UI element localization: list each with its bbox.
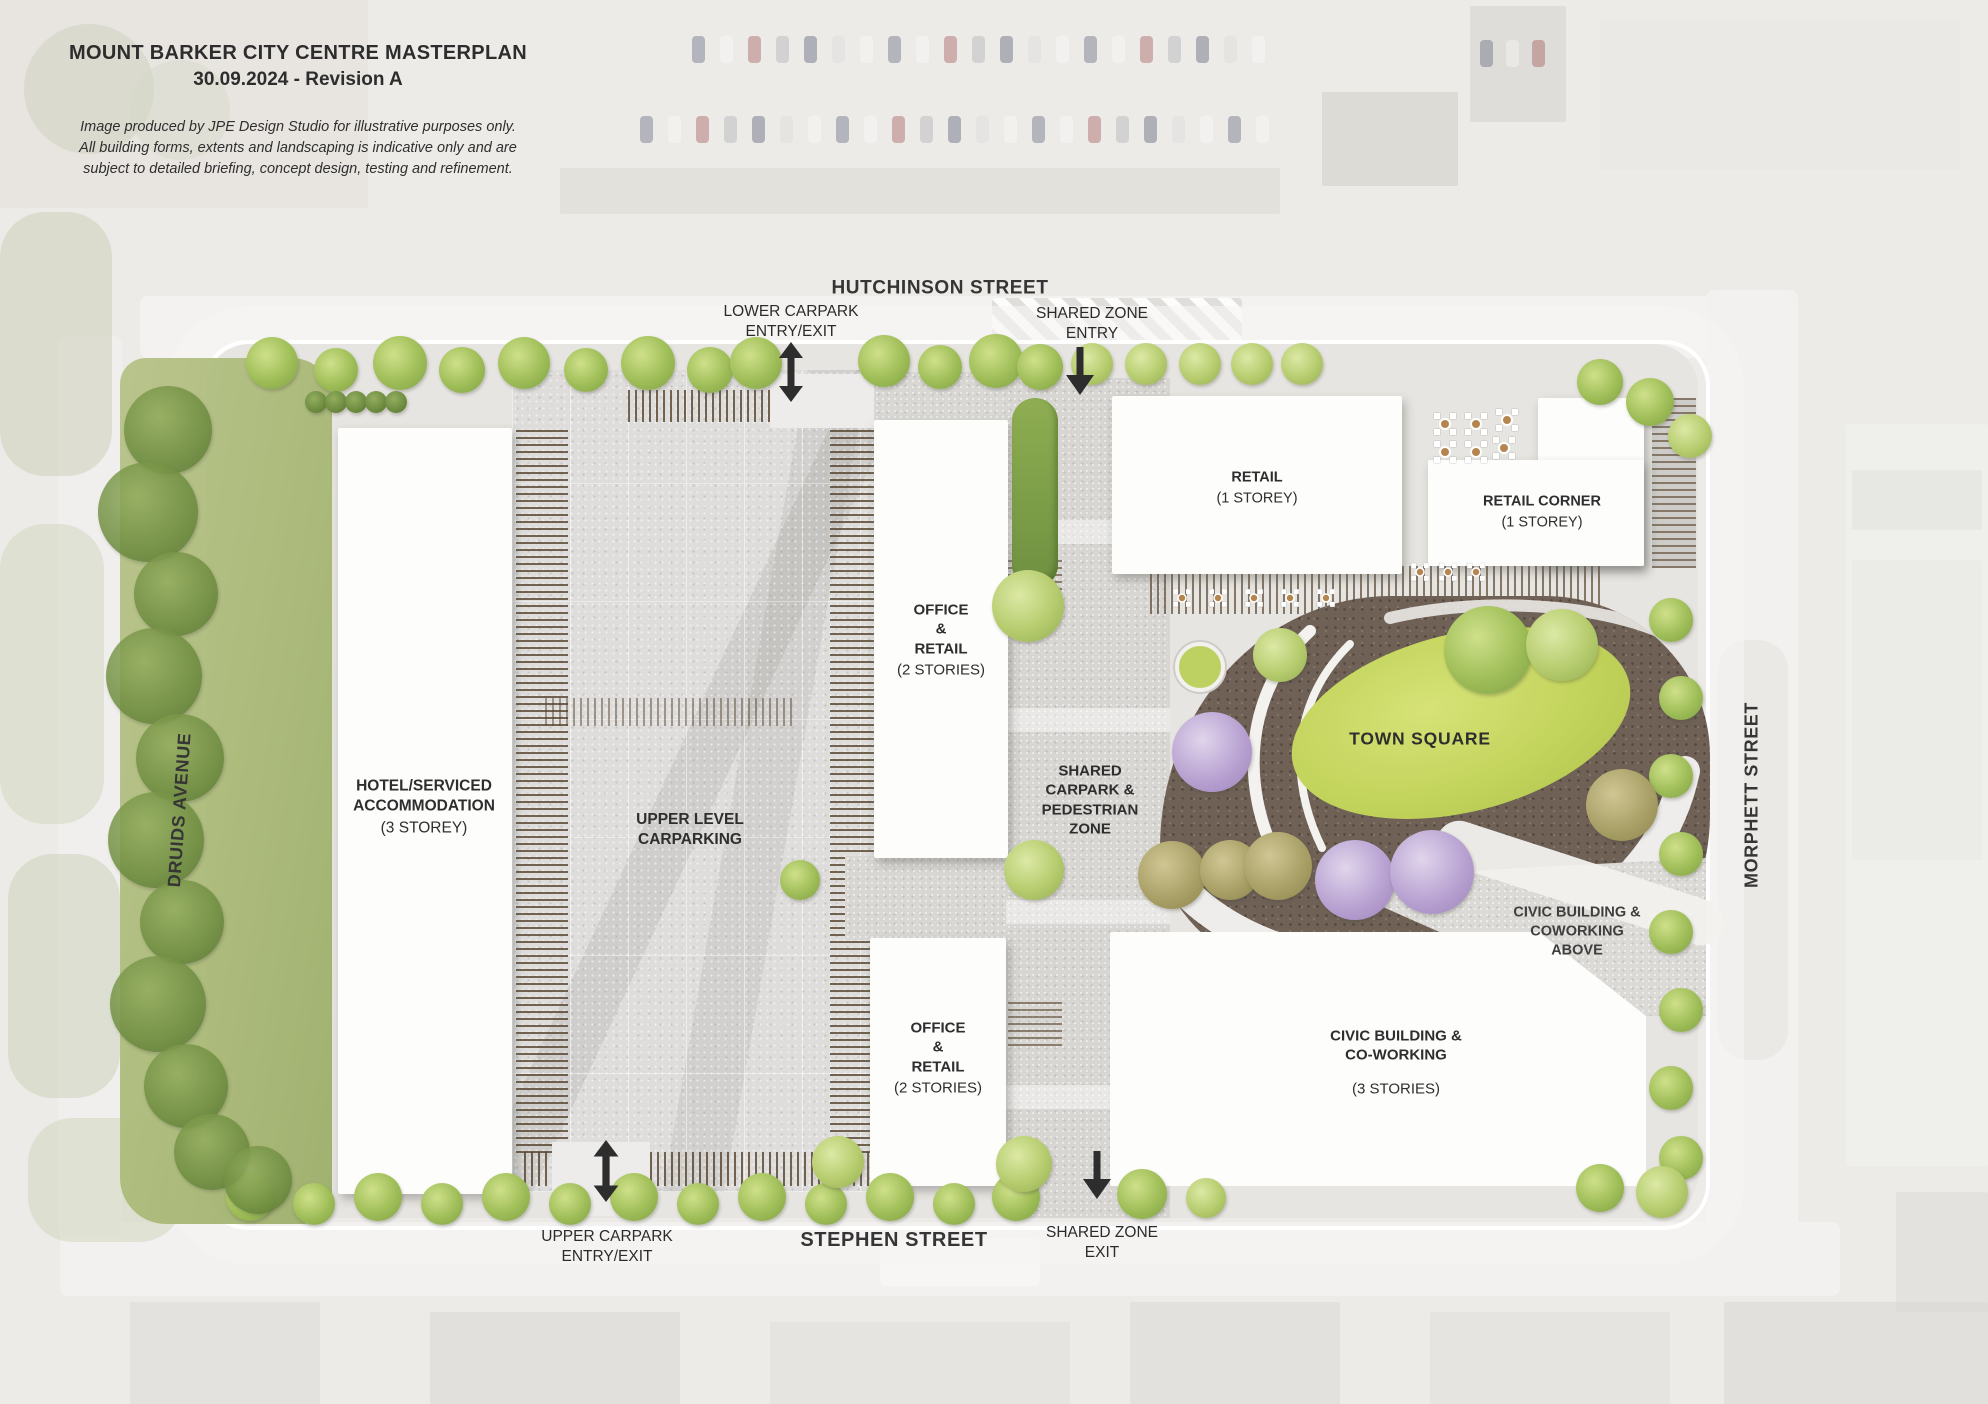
tree-icon (106, 628, 202, 724)
tree-icon (1444, 606, 1532, 694)
tree-icon (969, 334, 1023, 388)
plan-title: MOUNT BARKER CITY CENTRE MASTERPLAN (28, 42, 568, 65)
tree-icon (482, 1173, 530, 1221)
tree-icon (1315, 840, 1395, 920)
office-south-storeys: (2 STORIES) (894, 1079, 982, 1099)
tree-icon (1172, 712, 1252, 792)
tree-icon (738, 1173, 786, 1221)
shared-zone-exit-arrow-icon (1082, 1150, 1112, 1200)
tree-icon (373, 336, 427, 390)
tree-icon (858, 335, 910, 387)
tree-icon (1577, 359, 1623, 405)
tree-icon (421, 1183, 463, 1225)
tree-icon (1017, 344, 1063, 390)
civic-name: CIVIC BUILDING & CO-WORKING (1330, 1027, 1462, 1064)
tree-icon (314, 348, 358, 392)
tree-icon (134, 552, 218, 636)
lower-carpark-entry-label: LOWER CARPARK ENTRY/EXIT (724, 302, 859, 342)
tree-icon (305, 391, 327, 413)
shared-zone-name: SHARED CARPARK & PEDESTRIAN ZONE (1042, 762, 1139, 838)
retail-label: RETAIL (1 STOREY) (1216, 449, 1297, 526)
tree-icon (564, 348, 608, 392)
tree-icon (1649, 598, 1693, 642)
tree-icon (1138, 841, 1206, 909)
tree-icon (1175, 642, 1225, 692)
upper-carpark-label: UPPER LEVEL CARPARKING (636, 790, 744, 850)
tree-icon (1626, 378, 1674, 426)
tree-icon (805, 1183, 847, 1225)
town-square-name: TOWN SQUARE (1349, 728, 1491, 748)
tree-icon (110, 956, 206, 1052)
retail-name: RETAIL (1231, 469, 1282, 485)
tree-icon (992, 570, 1064, 642)
tree-icon (1125, 343, 1167, 385)
tree-icon (687, 347, 733, 393)
upper-carpark-entry-label: UPPER CARPARK ENTRY/EXIT (541, 1227, 673, 1267)
town-square-label: TOWN SQUARE (1349, 704, 1491, 750)
shared-zone-exit-label: SHARED ZONE EXIT (1046, 1223, 1158, 1263)
tree-icon (1636, 1166, 1688, 1218)
tree-icon (918, 345, 962, 389)
shared-zone-label: SHARED CARPARK & PEDESTRIAN ZONE (1042, 741, 1139, 839)
tree-icon (1186, 1178, 1226, 1218)
tree-icon (365, 391, 387, 413)
civic-storeys: (3 STORIES) (1330, 1079, 1462, 1099)
plan-disclaimer: Image produced by JPE Design Studio for … (28, 117, 568, 180)
hotel-storeys: (3 STOREY) (353, 819, 495, 839)
tree-icon (1281, 343, 1323, 385)
tree-icon (1253, 628, 1307, 682)
tree-icon (677, 1183, 719, 1225)
retail-corner-storeys: (1 STOREY) (1483, 513, 1601, 532)
civic-above-name: CIVIC BUILDING & COWORKING ABOVE (1513, 904, 1640, 958)
tree-icon (124, 386, 212, 474)
tree-icon (224, 1146, 292, 1214)
tree-icon (621, 336, 675, 390)
tree-icon (1659, 676, 1703, 720)
tree-icon (1004, 840, 1064, 900)
office-south-label: OFFICE & RETAIL (2 STORIES) (894, 999, 982, 1118)
tree-icon (1586, 769, 1658, 841)
tree-icon (1179, 343, 1221, 385)
office-south-name: OFFICE & RETAIL (910, 1019, 965, 1075)
shared-zone-entry-arrow-icon (1065, 346, 1095, 396)
tree-icon (1244, 832, 1312, 900)
tree-icon (996, 1136, 1052, 1192)
tree-icon (1117, 1169, 1167, 1219)
tree-icon (1649, 910, 1693, 954)
tree-icon (1668, 414, 1712, 458)
street-label-morphett: MORPHETT STREET (1740, 702, 1763, 888)
lower-carpark-arrow-icon (774, 342, 808, 402)
tree-icon (345, 391, 367, 413)
tree-icon (354, 1173, 402, 1221)
masterplan-canvas: MOUNT BARKER CITY CENTRE MASTERPLAN 30.0… (0, 0, 1988, 1404)
tree-icon (325, 391, 347, 413)
tree-icon (866, 1173, 914, 1221)
tree-icon (1576, 1164, 1624, 1212)
tree-layer (0, 0, 1988, 1404)
tree-icon (498, 337, 550, 389)
tree-icon (1390, 830, 1474, 914)
tree-icon (293, 1183, 335, 1225)
title-block: MOUNT BARKER CITY CENTRE MASTERPLAN 30.0… (28, 42, 568, 180)
civic-above-label: CIVIC BUILDING & COWORKING ABOVE (1513, 884, 1640, 959)
tree-icon (246, 337, 298, 389)
tree-icon (1649, 1066, 1693, 1110)
tree-icon (439, 347, 485, 393)
tree-icon (780, 860, 820, 900)
tree-icon (1659, 988, 1703, 1032)
street-label-stephen: STEPHEN STREET (800, 1227, 987, 1253)
upper-carpark-name: UPPER LEVEL CARPARKING (636, 811, 744, 848)
hotel-name: HOTEL/SERVICED ACCOMMODATION (353, 778, 495, 815)
office-north-label: OFFICE & RETAIL (2 STORIES) (897, 581, 985, 700)
tree-icon (1659, 832, 1703, 876)
hotel-label: HOTEL/SERVICED ACCOMMODATION (3 STOREY) (353, 757, 495, 860)
tree-icon (1231, 343, 1273, 385)
tree-icon (812, 1136, 864, 1188)
retail-storeys: (1 STOREY) (1216, 489, 1297, 508)
upper-carpark-arrow-icon (589, 1140, 623, 1202)
retail-corner-label: RETAIL CORNER (1 STOREY) (1483, 473, 1601, 550)
office-north-storeys: (2 STORIES) (897, 661, 985, 681)
tree-icon (140, 880, 224, 964)
tree-icon (98, 462, 198, 562)
shared-zone-entry-label: SHARED ZONE ENTRY (1036, 304, 1148, 344)
tree-icon (549, 1183, 591, 1225)
tree-icon (933, 1183, 975, 1225)
retail-corner-name: RETAIL CORNER (1483, 493, 1601, 509)
tree-icon (1526, 609, 1598, 681)
street-label-hutchinson: HUTCHINSON STREET (831, 277, 1048, 302)
civic-label: CIVIC BUILDING & CO-WORKING (3 STORIES) (1330, 1006, 1462, 1118)
plan-revision: 30.09.2024 - Revision A (28, 69, 568, 91)
tree-icon (385, 391, 407, 413)
office-north-name: OFFICE & RETAIL (913, 601, 968, 657)
